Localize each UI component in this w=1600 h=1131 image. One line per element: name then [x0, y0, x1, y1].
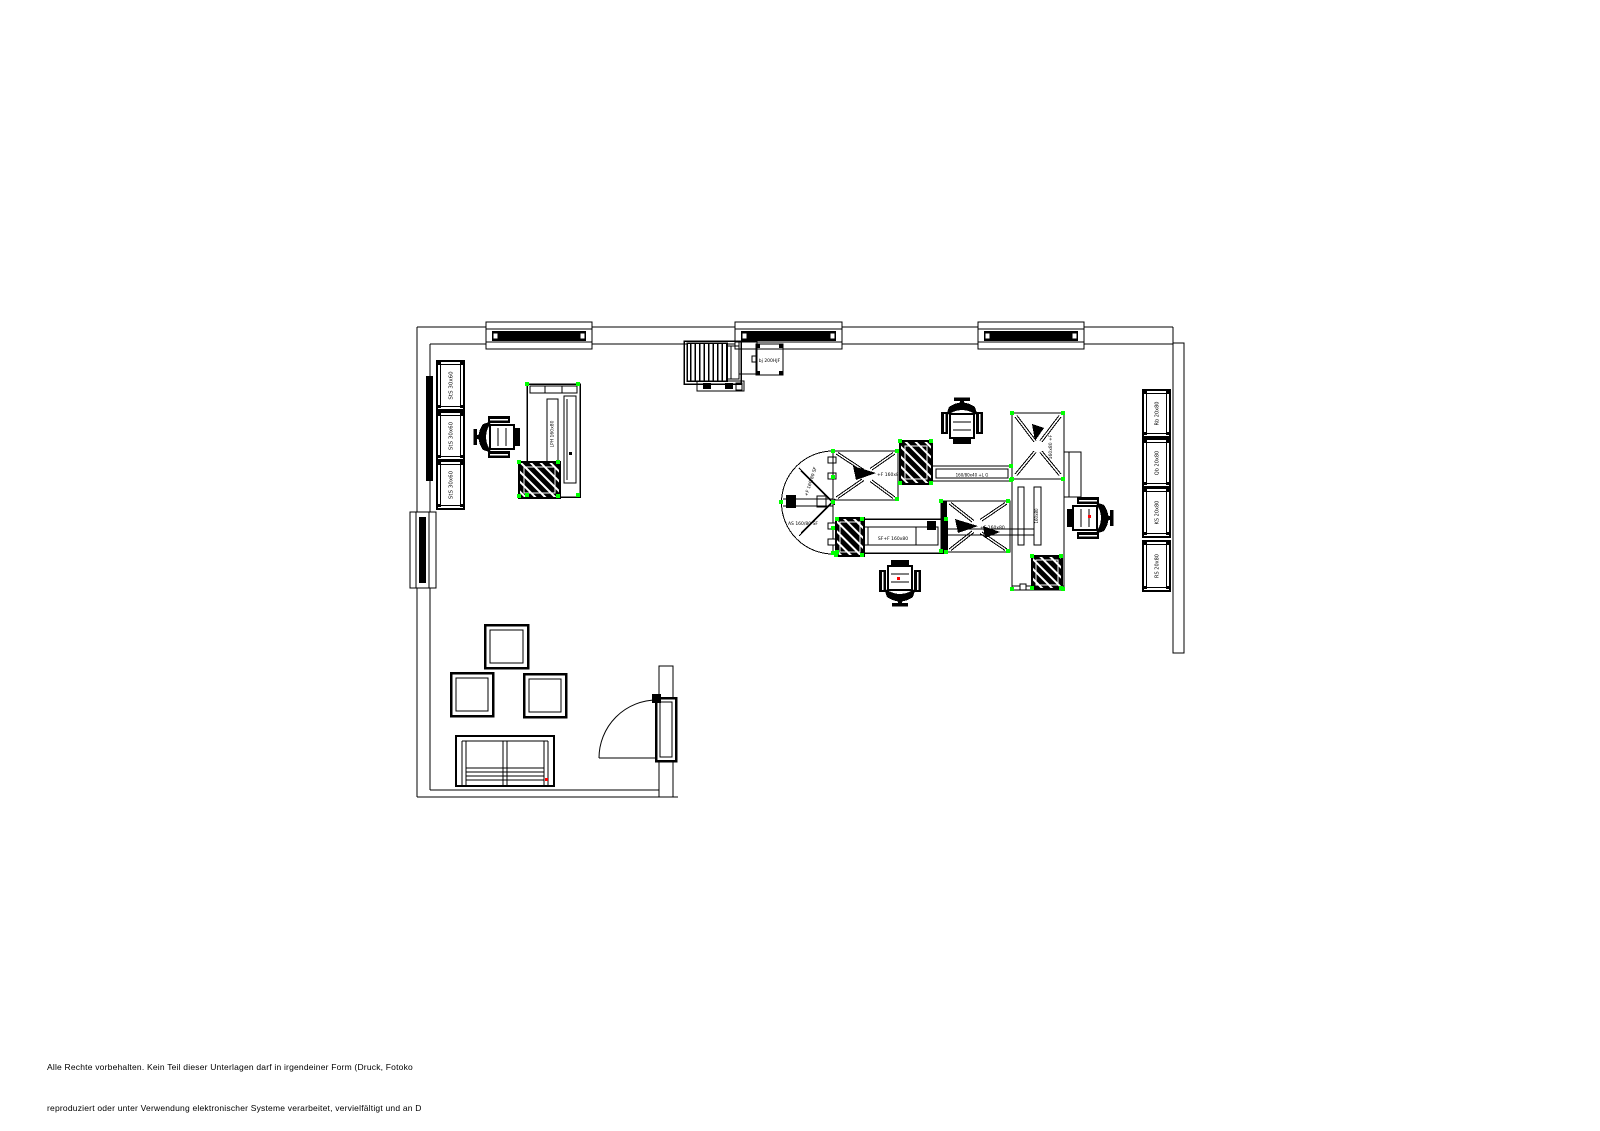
grip-handle[interactable]: [1030, 554, 1034, 558]
grip-handle[interactable]: [556, 494, 560, 498]
grip-handle[interactable]: [831, 526, 835, 530]
grip-handle[interactable]: [834, 553, 838, 557]
door[interactable]: [599, 694, 676, 761]
window-top-b[interactable]: [735, 322, 842, 349]
red-marker: [1088, 515, 1091, 518]
insertion-markers: [545, 515, 1091, 781]
desk-a[interactable]: +F 160x80: [833, 451, 902, 500]
grip-handle[interactable]: [929, 481, 933, 485]
radiator-left[interactable]: [426, 376, 433, 481]
grip-handle[interactable]: [939, 549, 943, 553]
meeting-disc-label-upper: +F 160/80 SF: [803, 466, 818, 497]
grip-handle[interactable]: [895, 449, 899, 453]
lounge-partition-wall[interactable]: [659, 666, 673, 797]
grip-handle[interactable]: [1059, 586, 1063, 590]
desk-a-label: +F 160x80: [877, 472, 902, 478]
grip-handle[interactable]: [929, 439, 933, 443]
cabinet-c1[interactable]: [900, 441, 932, 484]
office-chair-3[interactable]: [879, 560, 921, 607]
meeting-disc[interactable]: +F 160/80 SF AS 160/80 SF: [782, 451, 837, 554]
cabinet-right-3-label: KS 20x80: [1155, 501, 1161, 525]
cabinet-c3[interactable]: [1032, 556, 1062, 589]
grip-handle[interactable]: [831, 449, 835, 453]
grip-handle[interactable]: [1009, 464, 1013, 468]
cabinet-right-1[interactable]: Rb 20x80: [1143, 390, 1170, 437]
sofa[interactable]: [456, 736, 554, 786]
cabinet-c2[interactable]: [836, 518, 864, 556]
grip-handle[interactable]: [1061, 411, 1065, 415]
desk-d-side-return[interactable]: [1064, 452, 1081, 497]
grip-handle[interactable]: [939, 499, 943, 503]
desk-b-label: SF+F 160x80: [878, 536, 908, 542]
grip-handle[interactable]: [779, 500, 783, 504]
cabinet-right-3[interactable]: KS 20x80: [1143, 488, 1170, 537]
cabinet-left-1-label: StS 30x60: [449, 371, 455, 400]
grip-handle[interactable]: [517, 494, 521, 498]
cabinet-right-4[interactable]: RS 20x80: [1143, 541, 1170, 591]
grip-handle[interactable]: [525, 382, 529, 386]
copyright-line-2: reproduziert oder unter Verwendung elekt…: [47, 1102, 422, 1116]
copyright-line-1: Alle Rechte vorbehalten. Kein Teil diese…: [47, 1061, 422, 1075]
grip-handle[interactable]: [517, 460, 521, 464]
grip-handle[interactable]: [831, 475, 835, 479]
window-top-c[interactable]: [978, 322, 1084, 349]
grip-handle[interactable]: [860, 517, 864, 521]
window-top-a[interactable]: [486, 322, 592, 349]
right-wall[interactable]: [1173, 343, 1184, 653]
lounge-table-1[interactable]: [485, 625, 528, 668]
grip-handle[interactable]: [1061, 477, 1065, 481]
floor-plan-canvas: StS 30x60 StS 30x60 StS 30x60 bj 200HJF: [0, 0, 1600, 1131]
cabinet-left-3-label: StS 30x60: [449, 470, 455, 499]
workstation-desk-label: LPH 160x80: [550, 420, 556, 447]
grip-handle[interactable]: [898, 439, 902, 443]
grip-handle[interactable]: [898, 481, 902, 485]
office-chair-2[interactable]: [941, 398, 983, 445]
grip-handle[interactable]: [1030, 586, 1034, 590]
desk-d-label: 160x80 +F: [1048, 434, 1054, 459]
desk-link-label: 160/80x40 +L G: [956, 473, 989, 478]
red-marker: [545, 778, 548, 781]
grip-handle[interactable]: [944, 550, 948, 554]
grip-handle[interactable]: [525, 493, 529, 497]
lounge-table-3[interactable]: [524, 674, 566, 717]
red-marker: [897, 577, 900, 580]
grip-handle[interactable]: [944, 517, 948, 521]
desk-c[interactable]: +F 160x80: [927, 501, 1010, 552]
desk-link[interactable]: 160/80x40 +L G: [932, 466, 1012, 481]
grip-handle[interactable]: [556, 460, 560, 464]
grip-handle[interactable]: [1006, 549, 1010, 553]
grip-handle[interactable]: [576, 493, 580, 497]
device-box-label: bj 200HJF: [759, 358, 781, 364]
cabinet-right-2-label: Qb 20x80: [1155, 451, 1161, 475]
window-left[interactable]: [410, 512, 436, 588]
grip-handle[interactable]: [1059, 554, 1063, 558]
desk-d-return-label: 160x80: [1034, 508, 1039, 524]
workstation-cabinet[interactable]: [519, 462, 560, 498]
cabinet-left-2[interactable]: StS 30x60: [437, 412, 464, 460]
grip-handle[interactable]: [1010, 587, 1014, 591]
grip-handle[interactable]: [835, 517, 839, 521]
grip-handle[interactable]: [1010, 411, 1014, 415]
office-chair-1[interactable]: [474, 416, 521, 458]
meeting-disc-label-lower: AS 160/80 SF: [788, 521, 818, 527]
cabinet-left-1[interactable]: StS 30x60: [437, 361, 464, 410]
grip-handle[interactable]: [860, 553, 864, 557]
grip-handle[interactable]: [1010, 477, 1014, 481]
grip-handle[interactable]: [831, 500, 835, 504]
grip-handle[interactable]: [895, 497, 899, 501]
lounge-table-2[interactable]: [451, 673, 493, 716]
cabinet-right-2[interactable]: Qb 20x80: [1143, 439, 1170, 487]
grip-handle[interactable]: [576, 382, 580, 386]
cabinet-right-4-label: RS 20x80: [1155, 554, 1161, 578]
cabinet-left-2-label: StS 30x60: [449, 421, 455, 450]
grip-handle[interactable]: [1006, 499, 1010, 503]
copyright-note: Alle Rechte vorbehalten. Kein Teil diese…: [47, 1034, 422, 1129]
cabinet-left-3[interactable]: StS 30x60: [437, 461, 464, 509]
cabinet-right-1-label: Rb 20x80: [1155, 402, 1161, 426]
